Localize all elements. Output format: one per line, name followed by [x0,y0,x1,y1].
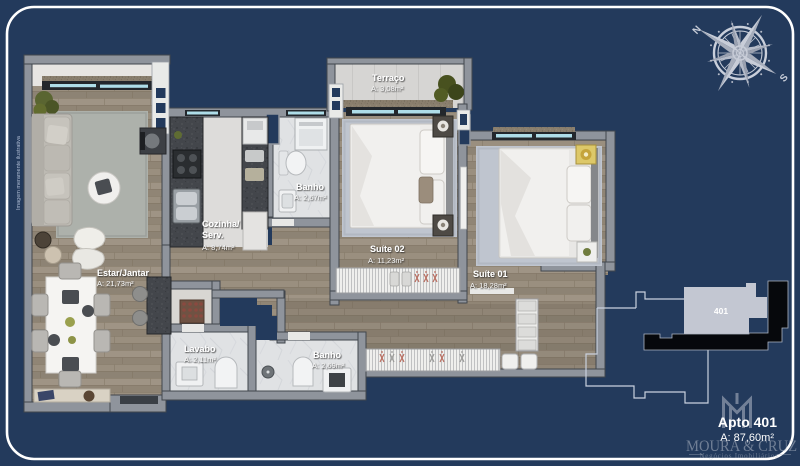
svg-text:Banho: Banho [313,350,342,360]
svg-text:Imagem meramente ilustrativa: Imagem meramente ilustrativa [16,135,22,210]
svg-text:Suíte 01: Suíte 01 [473,269,508,279]
svg-text:Suíte 02: Suíte 02 [370,244,405,254]
svg-text:Negócios Imobiliários: Negócios Imobiliários [699,452,778,460]
svg-text:Banho: Banho [296,182,325,192]
svg-text:A: 8,74m²: A: 8,74m² [202,243,235,252]
svg-text:A: 2,11m²: A: 2,11m² [184,355,216,364]
svg-text:Terraço: Terraço [372,73,405,83]
svg-text:Cozinha/: Cozinha/ [202,219,240,229]
svg-text:401: 401 [714,306,728,316]
svg-text:Apto 401: Apto 401 [718,414,777,430]
svg-text:Lavabo: Lavabo [184,344,216,354]
svg-text:A: 2,69m²: A: 2,69m² [312,361,345,370]
svg-text:A: 18,28m²: A: 18,28m² [470,281,507,290]
svg-text:A: 3,08m²: A: 3,08m² [371,84,404,93]
svg-text:A: 2,67m²: A: 2,67m² [294,193,327,202]
svg-text:Serv.: Serv. [202,230,223,240]
svg-text:A: 21,73m²: A: 21,73m² [97,279,134,288]
svg-text:A: 11,23m²: A: 11,23m² [368,256,405,265]
svg-text:Estar/Jantar: Estar/Jantar [97,268,150,278]
